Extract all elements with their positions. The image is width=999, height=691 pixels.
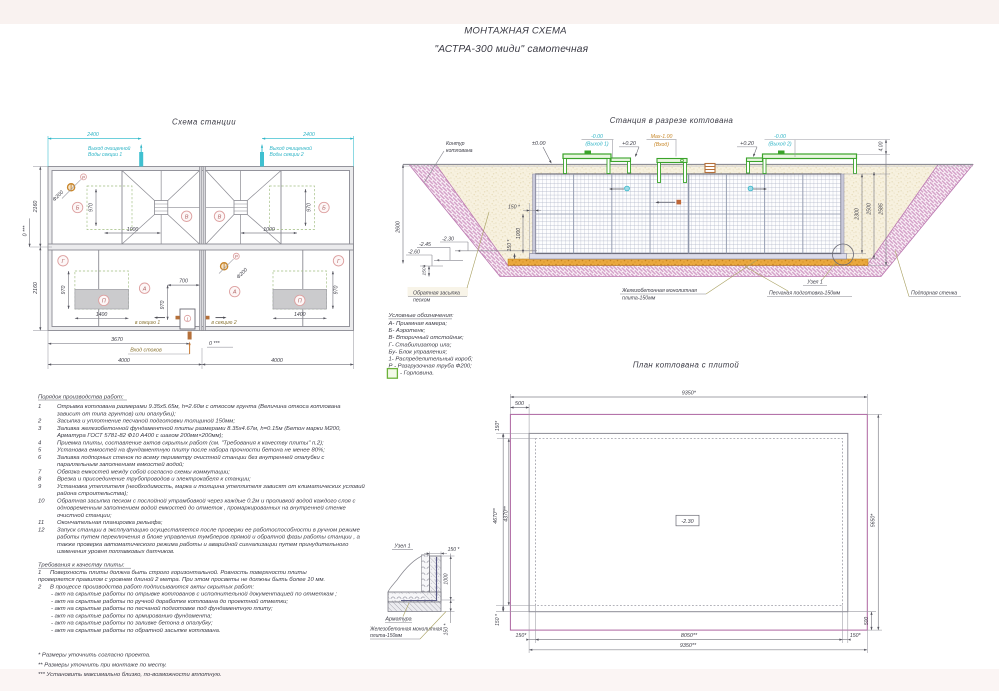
svg-text:4670**: 4670** <box>493 507 499 524</box>
svg-text:Установка емкостей на фундамен: Установка емкостей на фундаментную плиту… <box>56 447 325 454</box>
svg-text:1000: 1000 <box>444 573 450 584</box>
svg-text:700: 700 <box>179 278 188 284</box>
svg-text:2300: 2300 <box>855 208 861 221</box>
svg-text:0 ***: 0 *** <box>209 341 221 347</box>
svg-text:2585: 2585 <box>879 203 885 216</box>
svg-text:Станция в разрезе котлована: Станция в разрезе котлована <box>610 116 734 125</box>
svg-text:Б- Аэротенк;: Б- Аэротенк; <box>389 328 426 334</box>
svg-text:4370**: 4370** <box>503 505 509 522</box>
svg-text:2500: 2500 <box>867 203 873 216</box>
svg-text:1: 1 <box>38 570 41 576</box>
svg-text:970: 970 <box>61 286 67 295</box>
svg-text:А: А <box>142 286 147 292</box>
svg-text:- акт на скрытые работы по арм: - акт на скрытые работы по армированию ф… <box>51 613 212 619</box>
svg-text:10: 10 <box>38 498 45 504</box>
svg-text:в секцию 2: в секцию 2 <box>211 320 236 326</box>
svg-text:также проверка автоматического: также проверка автоматического режима ра… <box>57 541 349 548</box>
svg-text:* Размеры уточнить согласно пр: * Размеры уточнить согласно проекта. <box>38 653 151 659</box>
svg-text:изменения уровня поплавковых д: изменения уровня поплавковых датчиков. <box>57 549 175 555</box>
svg-text:5650*: 5650* <box>871 513 877 528</box>
svg-text:"АСТРА-300 миди" самотечная: "АСТРА-300 миди" самотечная <box>434 44 588 55</box>
svg-text:Г- Стабилизатор ила;: Г- Стабилизатор ила; <box>389 342 452 348</box>
svg-text:одновременным заполнением водо: одновременным заполнением водой емкостей… <box>57 505 347 512</box>
svg-text:1000: 1000 <box>127 227 139 233</box>
svg-text:Отрывка котлована размерами 9.: Отрывка котлована размерами 9.35х5.65м, … <box>57 404 341 410</box>
svg-text:Порядок производства работ:: Порядок производства работ: <box>38 394 124 400</box>
svg-text:150 *: 150 * <box>448 547 461 553</box>
svg-text:1: 1 <box>186 317 188 322</box>
svg-text:- акт на скрытые работы по отр: - акт на скрытые работы по отрывке котло… <box>51 591 337 598</box>
svg-text:970: 970 <box>307 203 313 212</box>
svg-text:Засыпка и уплотнение песчаной: Засыпка и уплотнение песчаной подготовки… <box>57 418 235 425</box>
svg-text:А: А <box>232 290 237 296</box>
svg-text:В: В <box>218 214 222 220</box>
svg-text:150*: 150* <box>495 420 501 431</box>
svg-text:1- Распределительный короб;: 1- Распределительный короб; <box>389 356 474 363</box>
svg-text:песком: песком <box>413 298 431 304</box>
svg-text:1000: 1000 <box>516 228 522 239</box>
svg-text:500: 500 <box>864 617 870 626</box>
svg-text:970: 970 <box>334 286 340 295</box>
svg-text:-2.30: -2.30 <box>442 236 454 242</box>
svg-text:Б: Б <box>322 206 326 212</box>
svg-text:А- Приемная камера;: А- Приемная камера; <box>388 321 448 327</box>
svg-text:В- Вторичный отстойник;: В- Вторичный отстойник; <box>389 334 464 341</box>
svg-text:- Горловина.: - Горловина. <box>400 370 434 376</box>
svg-text:500: 500 <box>515 401 524 407</box>
svg-text:1: 1 <box>38 404 41 410</box>
svg-text:- акт на скрытые работы по пес: - акт на скрытые работы по песчаной подг… <box>51 605 273 612</box>
svg-text:150*: 150* <box>850 633 862 639</box>
svg-text:11: 11 <box>38 520 44 526</box>
svg-text:(Выход 1): (Выход 1) <box>585 141 609 147</box>
svg-text:План котлована с плитой: План котлована с плитой <box>633 361 740 370</box>
svg-text:+0.20: +0.20 <box>622 141 636 147</box>
svg-text:2: 2 <box>37 584 42 590</box>
svg-text:150*: 150* <box>516 633 528 639</box>
svg-text:Запуск станции в эксплуатацию: Запуск станции в эксплуатацию осуществля… <box>57 527 361 533</box>
svg-text:очистной станции;: очистной станции; <box>57 512 112 519</box>
svg-text:Окончательная планировка релье: Окончательная планировка рельефа; <box>57 520 163 526</box>
svg-text:Б: Б <box>76 206 80 212</box>
svg-text:+0.20: +0.20 <box>740 141 754 147</box>
svg-text:Поверхность плиты должна быть: Поверхность плиты должна быть строго гор… <box>50 569 307 576</box>
svg-text:Железобетонная монолитная: Железобетонная монолитная <box>369 627 442 633</box>
svg-text:1400: 1400 <box>294 312 306 318</box>
svg-text:котлована: котлована <box>446 148 473 154</box>
svg-text:В процессе производства работ: В процессе производства работ подписываю… <box>50 584 254 590</box>
svg-text:Контур: Контур <box>446 141 465 147</box>
svg-text:4.00: 4.00 <box>879 141 885 151</box>
svg-text:Установка утеплителя (необходи: Установка утеплителя (необходимость, мар… <box>56 483 365 490</box>
svg-text:150 *: 150 * <box>507 239 513 252</box>
svg-text:зависит от типа грунтов) или о: зависит от типа грунтов) или опалубки); <box>56 411 176 417</box>
svg-text:- акт на скрытые работы по зал: - акт на скрытые работы по заливке бетон… <box>51 621 213 627</box>
svg-text:2160: 2160 <box>33 282 39 295</box>
svg-text:параллельным заполнением емкос: параллельным заполнением емкостей водой; <box>57 461 184 468</box>
svg-text:района строительства);: района строительства); <box>56 490 128 497</box>
svg-text:МОНТАЖНАЯ СХЕМА: МОНТАЖНАЯ СХЕМА <box>464 26 567 37</box>
svg-text:8050**: 8050** <box>681 633 698 639</box>
svg-text:Обратная засыпка: Обратная засыпка <box>413 290 460 296</box>
svg-text:*** Установить максимально бли: *** Установить максимально близко, по-во… <box>38 672 222 678</box>
svg-text:Р - Разгрузочная труба Ф200;: Р - Разгрузочная труба Ф200; <box>389 364 473 370</box>
svg-text:150 *: 150 * <box>495 613 501 626</box>
svg-text:150 *: 150 * <box>444 623 450 636</box>
svg-text:2600: 2600 <box>396 221 402 234</box>
svg-text:Арматура ГОСТ 5781-82 Ф10 А400: Арматура ГОСТ 5781-82 Ф10 А400 с шагом 2… <box>56 433 224 439</box>
svg-text:9350**: 9350** <box>680 643 697 649</box>
svg-text:Железобетонная монолитная: Железобетонная монолитная <box>621 288 697 294</box>
svg-text:проверяется правилом с уровнем: проверяется правилом с уровнем длиной 2 … <box>38 576 325 583</box>
svg-text:Обвязка емкостей между собой с: Обвязка емкостей между собой согласно сх… <box>57 468 230 475</box>
svg-text:Узел 1: Узел 1 <box>393 544 410 550</box>
svg-text:Мах-1.00: Мах-1.00 <box>651 134 673 140</box>
svg-text:-0.00: -0.00 <box>591 134 603 140</box>
svg-text:Заливка железобетонной фундаме: Заливка железобетонной фундаментной плит… <box>57 425 341 432</box>
svg-text:Схема станции: Схема станции <box>172 118 236 127</box>
svg-text:Обратная засыпка песком с посл: Обратная засыпка песком с послойной утра… <box>57 497 355 504</box>
svg-text:0 ***: 0 *** <box>23 225 29 237</box>
svg-text:плита-150мм: плита-150мм <box>622 295 656 301</box>
svg-text:** Размеры уточнить при монтаж: ** Размеры уточнить при монтаже по месту… <box>38 662 167 668</box>
svg-text:12: 12 <box>38 527 45 533</box>
svg-text:- акт на скрытые работы по обр: - акт на скрытые работы по обратной засы… <box>51 627 221 634</box>
svg-text:±0.00: ±0.00 <box>532 141 545 147</box>
svg-text:2160: 2160 <box>33 201 39 214</box>
svg-text:работы путем переключения в бл: работы путем переключения в блоке управл… <box>56 534 361 541</box>
svg-text:-2.60: -2.60 <box>408 249 420 255</box>
svg-text:2: 2 <box>37 419 42 425</box>
svg-text:(Вход): (Вход) <box>654 142 669 148</box>
svg-text:-0.00: -0.00 <box>774 134 786 140</box>
svg-text:-2.30: -2.30 <box>681 519 693 525</box>
svg-text:1400: 1400 <box>96 312 108 318</box>
svg-text:Р: Р <box>82 175 85 180</box>
svg-text:(Выход 2): (Выход 2) <box>768 141 792 147</box>
svg-text:Подпорная стенка: Подпорная стенка <box>911 291 957 297</box>
svg-text:4000: 4000 <box>271 358 283 364</box>
svg-text:2400: 2400 <box>302 132 315 138</box>
svg-text:Воды секции 2: Воды секции 2 <box>270 152 304 158</box>
svg-text:Бу- Блок управления;: Бу- Блок управления; <box>389 349 448 355</box>
svg-text:- акт на скрытые работы по руч: - акт на скрытые работы по ручной дорабо… <box>51 598 288 605</box>
svg-text:Воды секции 1: Воды секции 1 <box>88 152 122 158</box>
svg-text:970: 970 <box>89 203 95 212</box>
svg-text:Условные обозначения:: Условные обозначения: <box>388 313 454 319</box>
svg-text:Р: Р <box>235 254 238 259</box>
svg-text:2400: 2400 <box>86 132 99 138</box>
svg-text:150: 150 <box>422 267 428 275</box>
svg-text:в секцию 1: в секцию 1 <box>135 320 160 326</box>
svg-text:4000: 4000 <box>118 358 130 364</box>
svg-text:3670: 3670 <box>111 337 123 343</box>
svg-text:150 *: 150 * <box>508 204 521 210</box>
svg-text:Приемка плиты, составление акт: Приемка плиты, составление актов скрытых… <box>57 440 324 446</box>
svg-text:Выход очищенной: Выход очищенной <box>88 145 131 152</box>
svg-text:Вход стоков: Вход стоков <box>130 348 162 354</box>
svg-text:плита-150мм: плита-150мм <box>370 633 403 639</box>
svg-text:Узел 1: Узел 1 <box>807 280 823 286</box>
svg-text:Выход очищенной: Выход очищенной <box>270 145 313 152</box>
svg-text:1000: 1000 <box>263 227 275 233</box>
svg-text:В: В <box>185 214 189 220</box>
svg-text:Арматура: Арматура <box>384 617 411 623</box>
svg-text:-2.45: -2.45 <box>419 242 431 248</box>
svg-text:Требования к качеству плиты:: Требования к качеству плиты: <box>38 563 125 569</box>
svg-text:970: 970 <box>160 301 166 310</box>
svg-text:Заливка подпорных стенок по вс: Заливка подпорных стенок по всему периме… <box>57 454 324 461</box>
svg-text:Песчаная подготовка-150мм: Песчаная подготовка-150мм <box>769 291 841 297</box>
svg-text:Врезка и присоединение трубопр: Врезка и присоединение трубопроводов и э… <box>57 477 251 483</box>
svg-text:9350*: 9350* <box>682 391 697 397</box>
